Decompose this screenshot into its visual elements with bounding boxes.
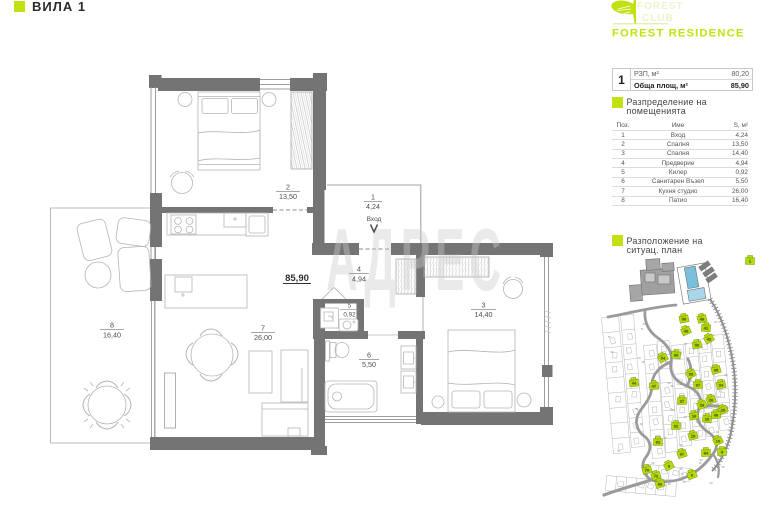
svg-text:61: 61 — [656, 440, 661, 445]
svg-text:26,00: 26,00 — [254, 333, 272, 342]
svg-text:26: 26 — [700, 403, 705, 408]
svg-text:66: 66 — [658, 482, 663, 487]
svg-text:FOREST: FOREST — [637, 1, 684, 12]
svg-text:43: 43 — [718, 389, 722, 393]
svg-text:74: 74 — [680, 472, 684, 476]
svg-text:Вход: Вход — [367, 216, 382, 223]
svg-text:70: 70 — [679, 467, 683, 471]
svg-text:70: 70 — [645, 468, 650, 473]
svg-text:13,50: 13,50 — [279, 192, 297, 201]
svg-text:50: 50 — [682, 317, 687, 322]
svg-text:0,92: 0,92 — [343, 312, 356, 319]
svg-text:7: 7 — [261, 324, 265, 333]
svg-text:64: 64 — [704, 451, 709, 456]
svg-text:2: 2 — [286, 183, 290, 192]
svg-text:33: 33 — [689, 372, 694, 377]
svg-text:53: 53 — [695, 343, 700, 348]
svg-text:4,94: 4,94 — [352, 275, 366, 284]
svg-text:56: 56 — [724, 373, 728, 377]
svg-text:71: 71 — [654, 474, 659, 479]
svg-text:62: 62 — [610, 350, 614, 354]
svg-text:58: 58 — [679, 443, 683, 447]
svg-text:15: 15 — [691, 434, 696, 439]
svg-text:67: 67 — [680, 452, 685, 457]
svg-text:18: 18 — [716, 395, 720, 399]
svg-text:23: 23 — [683, 415, 687, 419]
svg-text:14,40: 14,40 — [475, 310, 493, 319]
svg-text:3: 3 — [482, 301, 486, 310]
svg-text:15: 15 — [641, 360, 645, 364]
svg-text:46: 46 — [700, 317, 705, 322]
svg-text:64: 64 — [714, 320, 718, 324]
svg-text:30: 30 — [709, 481, 713, 485]
svg-text:62: 62 — [617, 449, 621, 453]
svg-text:58: 58 — [721, 465, 725, 469]
svg-text:6: 6 — [367, 351, 371, 360]
svg-text:11: 11 — [670, 407, 673, 411]
svg-text:37: 37 — [696, 383, 701, 388]
svg-text:10: 10 — [716, 439, 721, 444]
svg-text:CLUB: CLUB — [642, 13, 674, 24]
svg-text:71: 71 — [640, 327, 644, 331]
svg-text:57: 57 — [635, 407, 639, 411]
svg-text:5: 5 — [348, 303, 352, 310]
svg-text:44: 44 — [682, 480, 686, 484]
svg-text:4: 4 — [357, 265, 361, 274]
svg-text:АДРЕС: АДРЕС — [326, 210, 506, 309]
svg-text:31: 31 — [674, 424, 679, 429]
svg-text:27: 27 — [680, 399, 685, 404]
svg-text:41: 41 — [704, 326, 709, 331]
svg-text:29: 29 — [683, 342, 687, 346]
svg-text:36: 36 — [674, 353, 679, 358]
svg-text:1: 1 — [371, 193, 375, 202]
svg-text:47: 47 — [652, 384, 657, 389]
svg-text:28: 28 — [709, 398, 714, 403]
svg-text:85,90: 85,90 — [285, 273, 309, 284]
svg-text:54: 54 — [661, 356, 666, 361]
svg-text:42: 42 — [707, 337, 712, 342]
svg-text:34: 34 — [719, 383, 724, 388]
svg-text:FOREST RESIDENCE: FOREST RESIDENCE — [612, 28, 744, 40]
svg-text:13: 13 — [715, 430, 719, 434]
svg-text:19: 19 — [692, 414, 697, 419]
svg-text:16,40: 16,40 — [103, 331, 121, 340]
svg-text:78: 78 — [607, 335, 611, 339]
svg-text:5,50: 5,50 — [362, 360, 376, 369]
svg-text:35: 35 — [714, 368, 719, 373]
svg-text:44: 44 — [632, 381, 637, 386]
svg-text:40: 40 — [639, 422, 643, 426]
svg-text:4,24: 4,24 — [366, 202, 380, 211]
svg-text:59: 59 — [663, 436, 667, 440]
svg-text:18: 18 — [705, 417, 710, 422]
svg-text:39: 39 — [670, 384, 674, 388]
svg-text:48: 48 — [714, 413, 719, 418]
svg-text:45: 45 — [684, 329, 689, 334]
svg-text:15: 15 — [698, 461, 702, 465]
svg-text:8: 8 — [110, 321, 114, 330]
svg-text:25: 25 — [721, 408, 726, 413]
svg-text:59: 59 — [651, 461, 655, 465]
